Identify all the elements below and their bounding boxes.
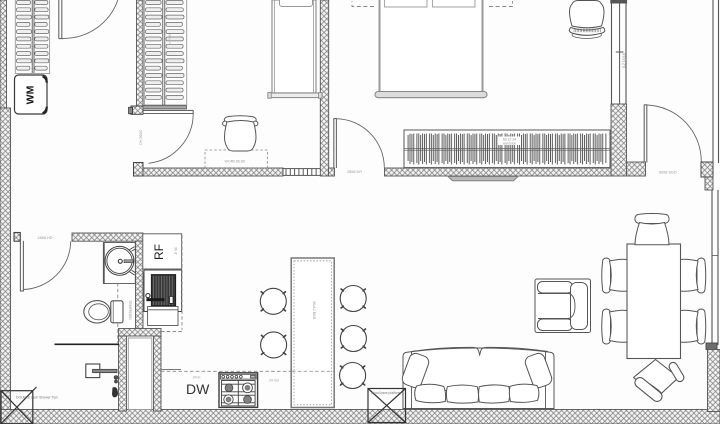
svg-text:2868 HD: 2868 HD (38, 236, 53, 240)
svg-text:24 in: 24 in (193, 376, 201, 380)
svg-text:36x12 BAR: 36x12 BAR (312, 301, 316, 320)
svg-text:DW: DW (186, 381, 210, 397)
svg-text:6068 SGD: 6068 SGD (659, 171, 677, 175)
svg-text:9'0x12'0: 9'0x12'0 (622, 53, 627, 69)
svg-text:60x24: 60x24 (168, 34, 172, 44)
svg-text:WORKDESK: WORKDESK (225, 160, 247, 164)
svg-text:TEMPERED: TEMPERED (128, 300, 132, 320)
svg-text:RF: RF (152, 244, 166, 260)
svg-text:wardrobe: wardrobe (503, 142, 517, 146)
svg-text:2868 DR: 2868 DR (347, 170, 362, 174)
svg-text:24 rnd: 24 rnd (269, 378, 279, 382)
svg-text:36 cf: 36 cf (174, 247, 178, 254)
svg-text:2668 HD: 2668 HD (139, 130, 143, 145)
svg-text:DOUBLE Curb Shower Pan: DOUBLE Curb Shower Pan (16, 396, 58, 400)
svg-text:Wood base platform: Wood base platform (371, 391, 401, 395)
svg-text:WM: WM (25, 85, 37, 104)
svg-text:60x22: 60x22 (30, 40, 34, 50)
